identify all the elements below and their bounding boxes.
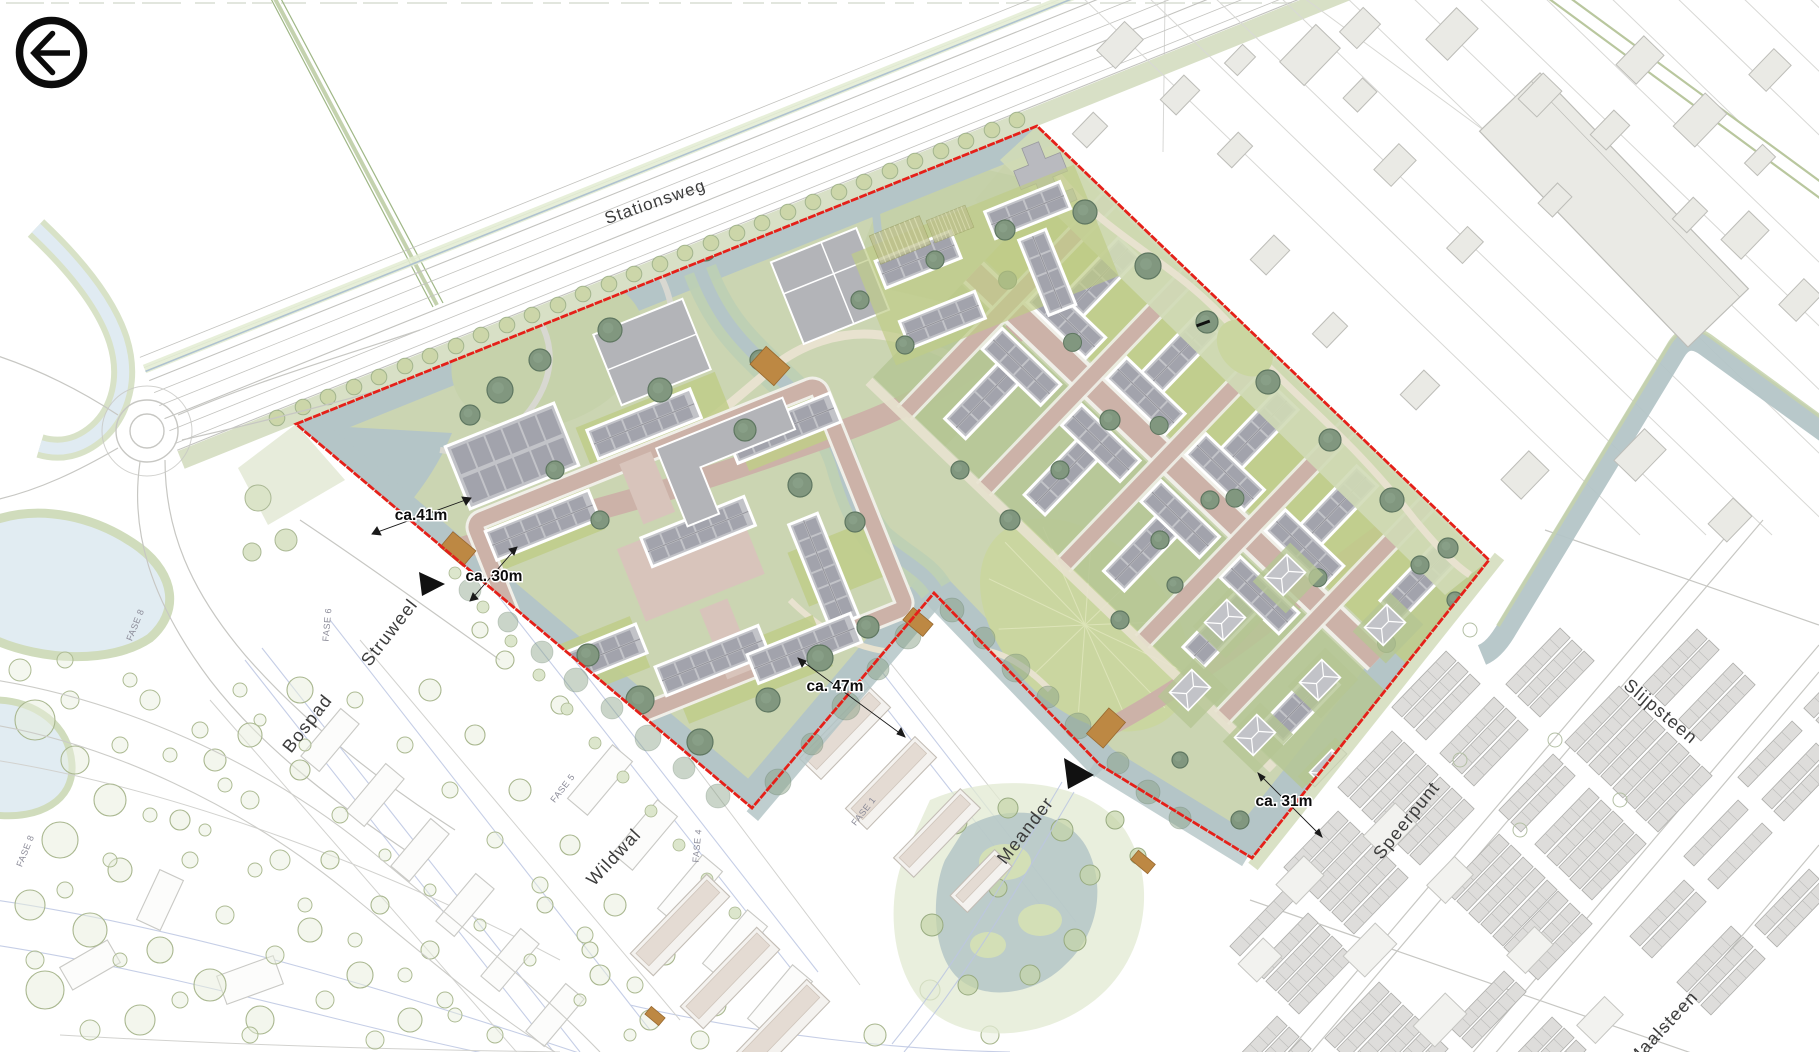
svg-text:ca. 30m: ca. 30m [466,568,523,585]
svg-text:ca.41m: ca.41m [395,507,448,524]
svg-text:ca. 47m: ca. 47m [807,678,864,695]
svg-text:ca. 31m: ca. 31m [1256,793,1313,810]
